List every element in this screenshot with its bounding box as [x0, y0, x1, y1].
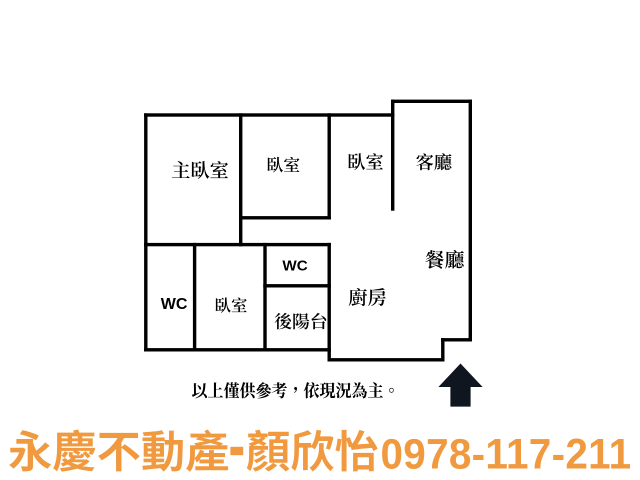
- svg-text:WC: WC: [282, 257, 307, 274]
- svg-text:0978-117-211: 0978-117-211: [381, 429, 632, 477]
- svg-text:WC: WC: [161, 296, 188, 313]
